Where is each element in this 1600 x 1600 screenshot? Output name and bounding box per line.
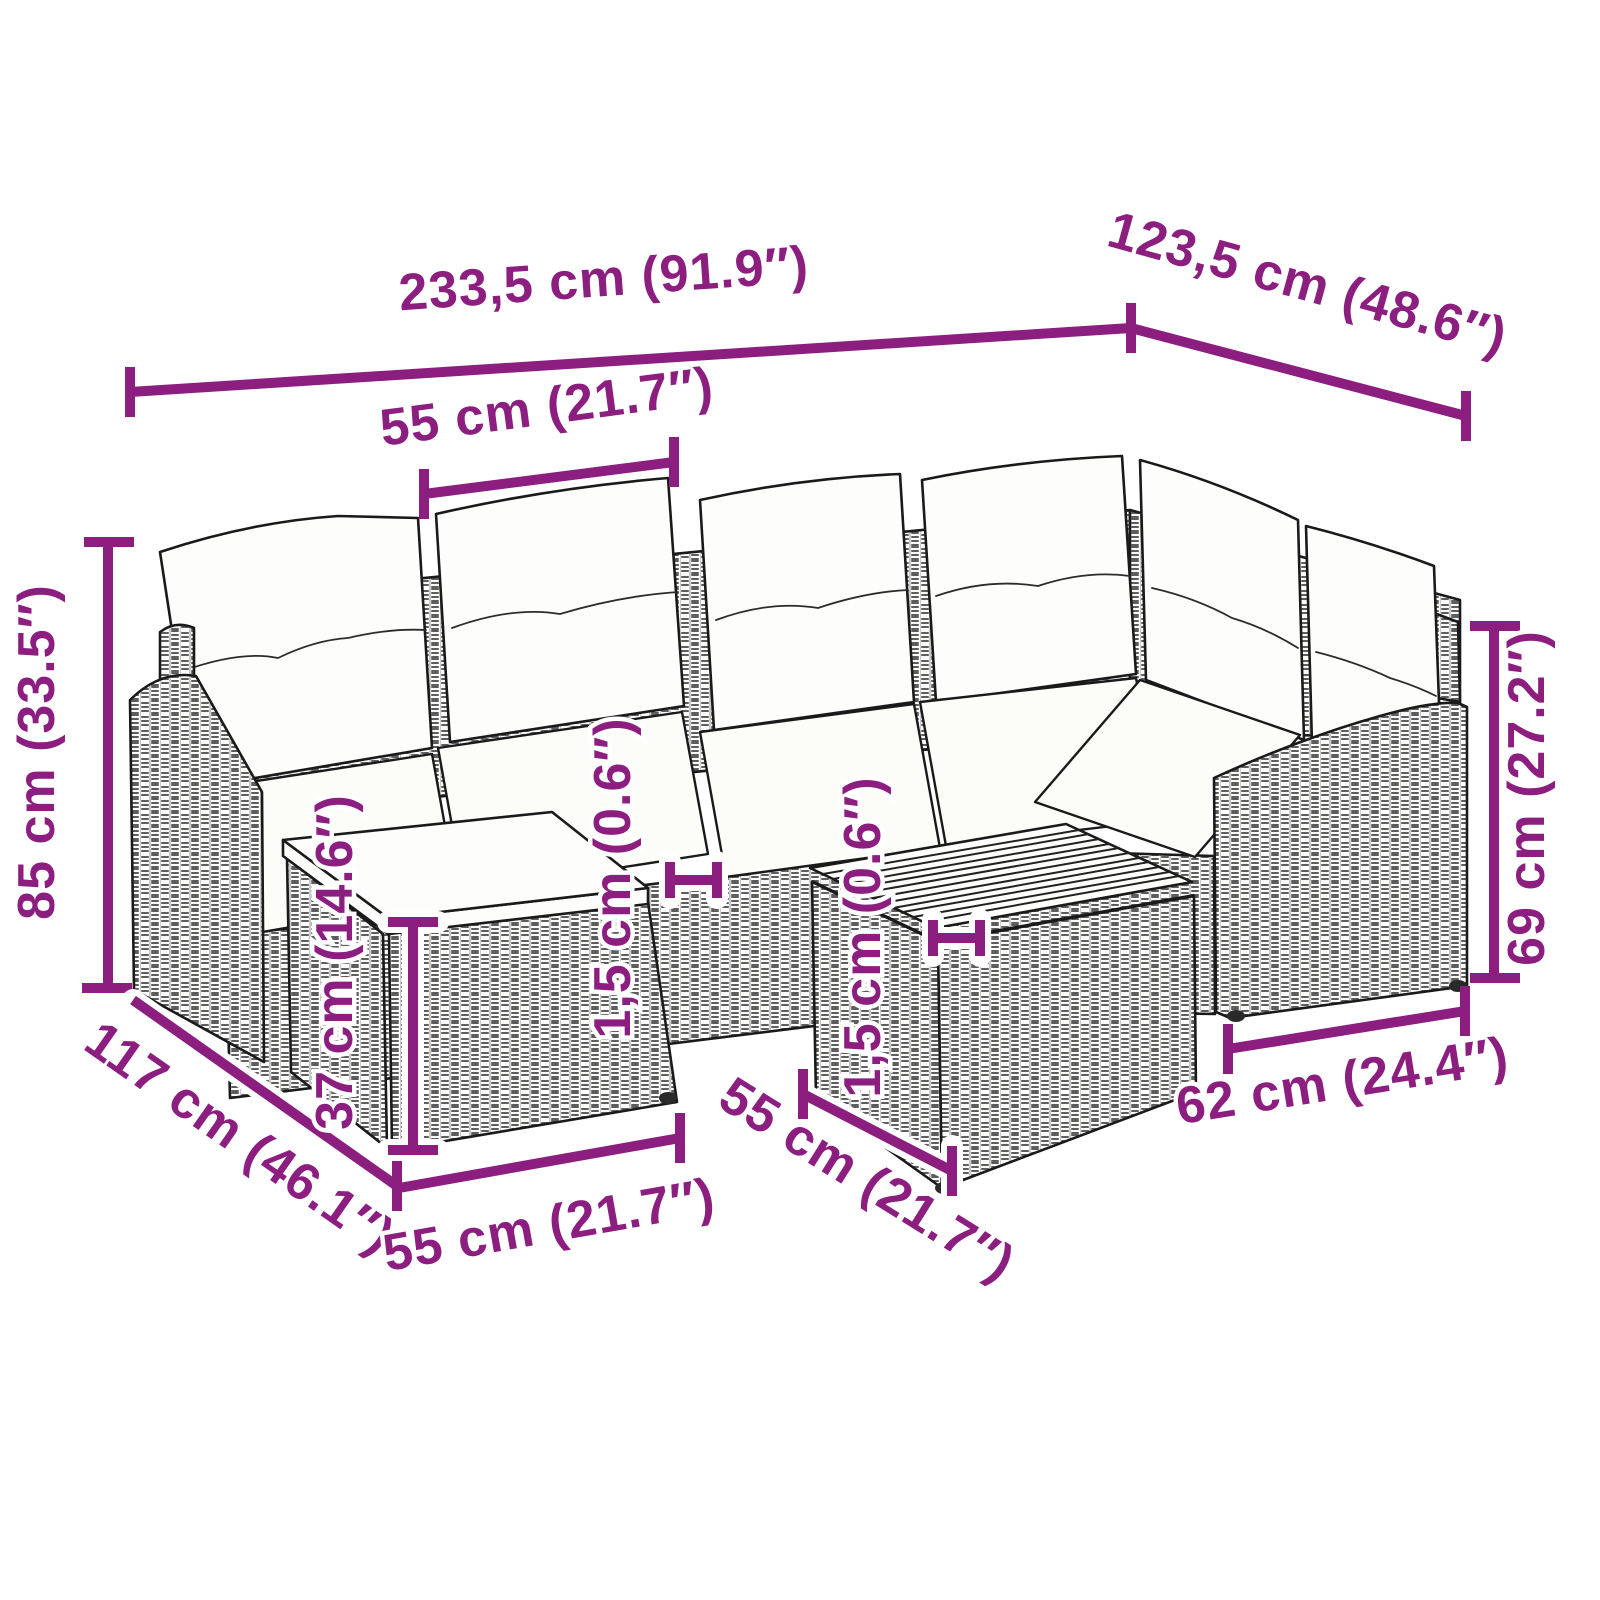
tabletop-thickness-label: 1,5 cm (0.6″) <box>834 776 892 1097</box>
diagram-canvas: 233,5 cm (91.9″) 123,5 cm (48.6″) 55 cm … <box>0 0 1600 1600</box>
dim-overall-depth: 123,5 cm (48.6″) <box>1102 201 1513 441</box>
footstool-foot <box>659 1092 677 1104</box>
dim-overall-height: 85 cm (33.5″) <box>8 542 134 988</box>
dim-armrest-height: 69 cm (27.2″) <box>1470 626 1556 978</box>
back-cushion <box>436 478 684 742</box>
back-cushion <box>922 456 1136 702</box>
overall-width-label: 233,5 cm (91.9″) <box>397 236 811 323</box>
overall-height-label: 85 cm (33.5″) <box>8 584 66 920</box>
back-cushion <box>700 474 914 730</box>
footstool-height-label: 37 cm (14.6″) <box>306 794 364 1130</box>
armrest-foot <box>1227 1010 1245 1022</box>
dimension-diagram: 233,5 cm (91.9″) 123,5 cm (48.6″) 55 cm … <box>0 0 1600 1600</box>
armrest-height-label: 69 cm (27.2″) <box>1498 630 1556 966</box>
seat-edge-thickness-label: 1,5 cm (0.6″) <box>584 717 642 1038</box>
